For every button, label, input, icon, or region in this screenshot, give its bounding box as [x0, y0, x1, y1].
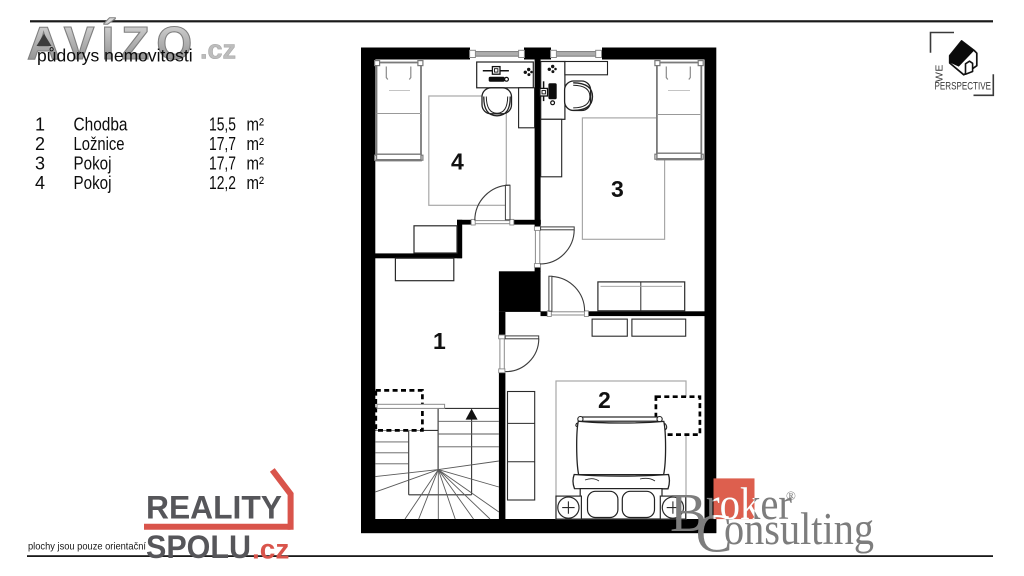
- svg-text:Pokoj: Pokoj: [74, 173, 112, 193]
- svg-text:4: 4: [451, 149, 464, 175]
- svg-text:15,5: 15,5: [209, 115, 236, 135]
- svg-text:1: 1: [433, 328, 446, 354]
- svg-text:SPOLU: SPOLU: [146, 529, 251, 565]
- svg-text:3: 3: [35, 154, 45, 174]
- svg-text:m²: m²: [247, 134, 265, 154]
- svg-text:®: ®: [786, 488, 796, 503]
- svg-text:17,7: 17,7: [209, 154, 236, 174]
- svg-text:3: 3: [611, 176, 624, 202]
- svg-text:.cz: .cz: [252, 534, 289, 565]
- svg-text:WE: WE: [934, 64, 946, 82]
- svg-text:m²: m²: [247, 115, 265, 135]
- svg-text:12,2: 12,2: [209, 173, 236, 193]
- svg-text:2: 2: [598, 387, 611, 413]
- svg-text:Ložnice: Ložnice: [74, 134, 125, 154]
- svg-text:m²: m²: [247, 173, 265, 193]
- svg-text:2: 2: [35, 134, 45, 154]
- svg-text:Pokoj: Pokoj: [74, 154, 112, 174]
- svg-text:17,7: 17,7: [209, 134, 236, 154]
- svg-text:plochy jsou pouze orientační: plochy jsou pouze orientační: [28, 541, 146, 553]
- svg-text:půdorys nemovitosti: půdorys nemovitosti: [37, 46, 193, 66]
- svg-text:REALITY: REALITY: [146, 490, 282, 526]
- svg-text:m²: m²: [247, 154, 265, 174]
- svg-text:1: 1: [35, 115, 45, 135]
- svg-text:Chodba: Chodba: [74, 115, 129, 135]
- svg-text:4: 4: [35, 173, 45, 193]
- svg-text:PERSPECTIVE: PERSPECTIVE: [935, 81, 992, 93]
- svg-text:.cz: .cz: [200, 35, 236, 65]
